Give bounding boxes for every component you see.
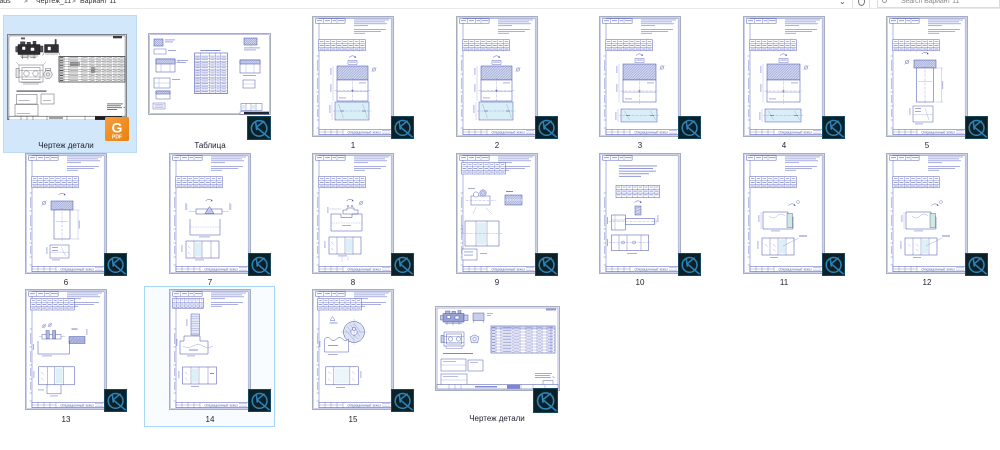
svg-text:Операционный эскиз: Операционный эскиз: [921, 268, 955, 272]
svg-text:Операционный эскиз: Операционный эскиз: [491, 268, 525, 272]
svg-text:Операционный эскиз: Операционный эскиз: [204, 404, 238, 408]
svg-text:Операционный эскиз: Операционный эскиз: [347, 268, 381, 272]
svg-text:Операционный эскиз: Операционный эскиз: [778, 268, 812, 272]
svg-text:Операционный эскиз: Операционный эскиз: [347, 131, 381, 135]
svg-text:Операционный эскиз: Операционный эскиз: [204, 268, 238, 272]
svg-text:Операционный эскиз: Операционный эскиз: [921, 131, 955, 135]
svg-text:Операционный эскиз: Операционный эскиз: [491, 131, 525, 135]
svg-text:Операционный эскиз: Операционный эскиз: [347, 404, 381, 408]
svg-text:Операционный эскиз: Операционный эскиз: [60, 404, 94, 408]
svg-text:Операционный эскиз: Операционный эскиз: [634, 268, 668, 272]
svg-text:Операционный эскиз: Операционный эскиз: [634, 131, 668, 135]
svg-text:Операционный эскиз: Операционный эскиз: [60, 268, 94, 272]
svg-text:G: G: [112, 120, 123, 136]
svg-text:Операционный эскиз: Операционный эскиз: [778, 131, 812, 135]
